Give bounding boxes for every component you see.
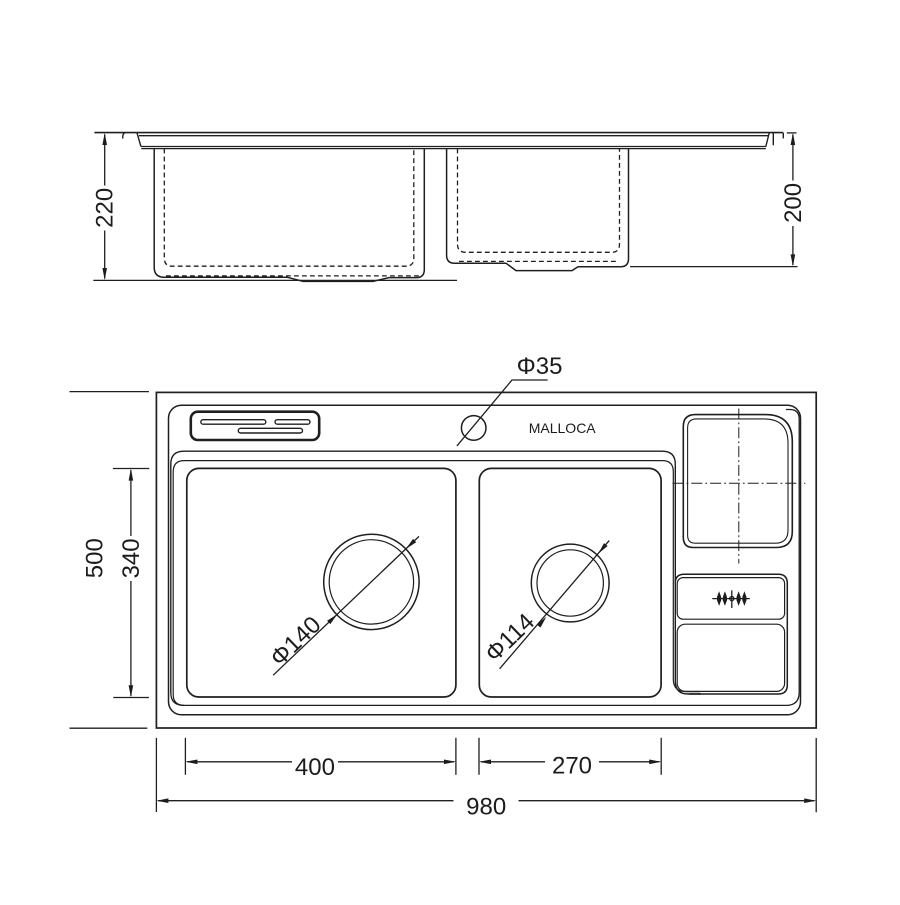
svg-text:400: 400: [295, 754, 335, 781]
svg-text:270: 270: [552, 752, 592, 779]
svg-text:340: 340: [118, 538, 145, 578]
svg-text:Φ35: Φ35: [517, 353, 563, 380]
svg-text:MALLOCA: MALLOCA: [529, 420, 597, 436]
svg-text:500: 500: [82, 538, 109, 578]
svg-text:220: 220: [92, 188, 119, 228]
svg-text:200: 200: [780, 183, 807, 223]
svg-text:980: 980: [466, 794, 506, 821]
